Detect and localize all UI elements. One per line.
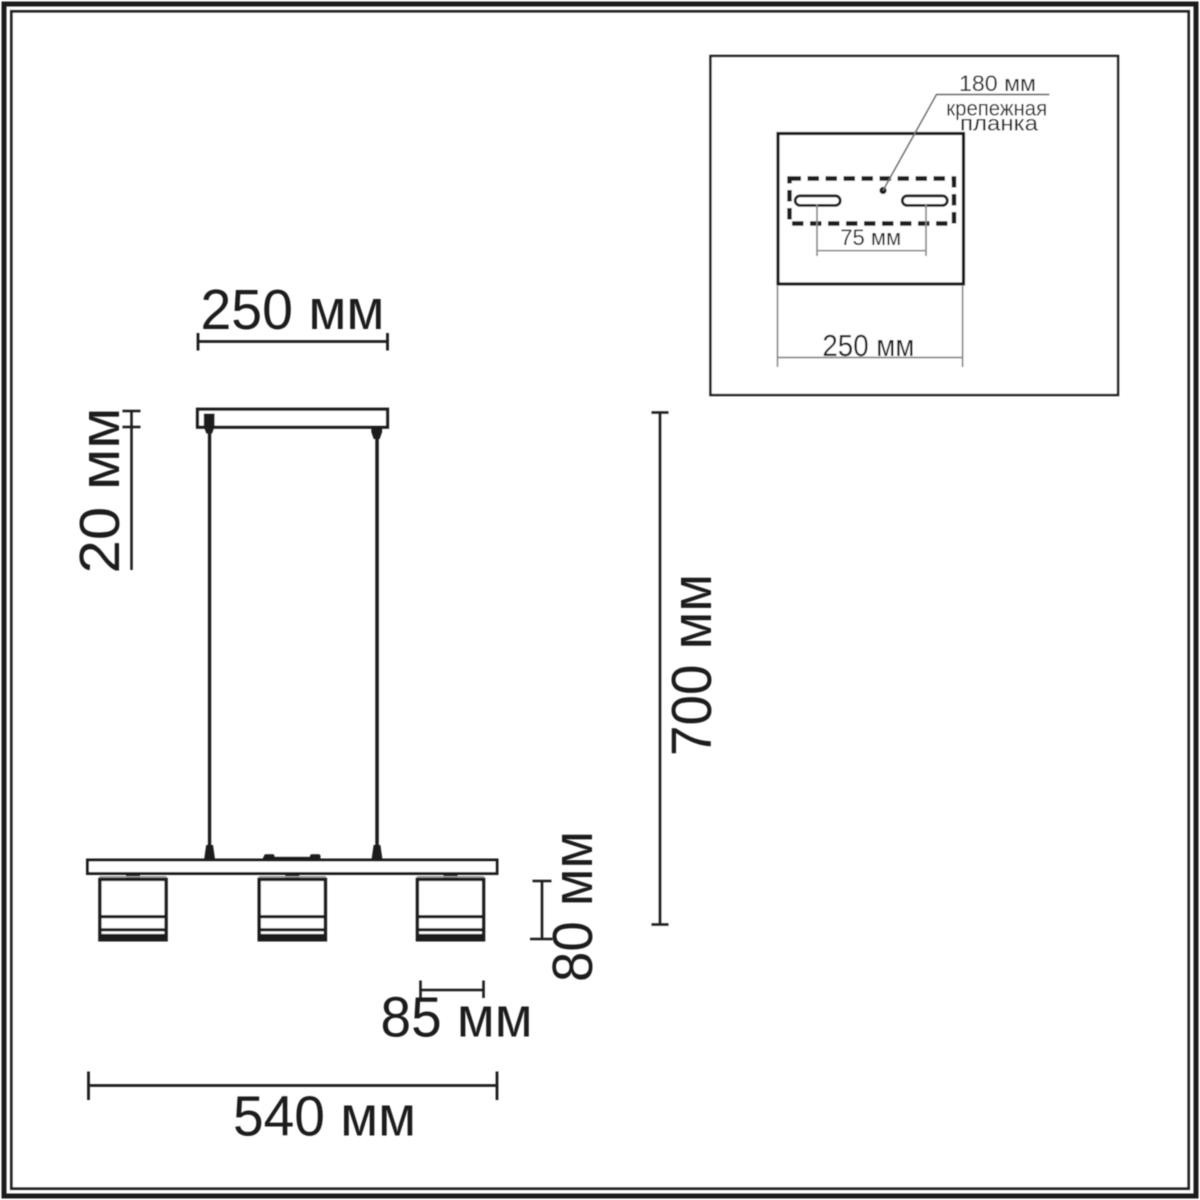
svg-text:85 мм: 85 мм	[381, 986, 533, 1049]
svg-text:250 мм: 250 мм	[822, 329, 914, 363]
svg-text:540 мм: 540 мм	[233, 1085, 416, 1148]
svg-text:крепежнаяпланка: крепежнаяпланка	[946, 97, 1047, 136]
svg-text:700 мм: 700 мм	[660, 574, 723, 756]
svg-text:80 мм: 80 мм	[541, 831, 604, 982]
svg-text:75 мм: 75 мм	[840, 225, 901, 250]
svg-text:250 мм: 250 мм	[201, 278, 385, 341]
svg-text:180 мм: 180 мм	[959, 71, 1036, 96]
svg-text:20 мм: 20 мм	[68, 408, 131, 574]
